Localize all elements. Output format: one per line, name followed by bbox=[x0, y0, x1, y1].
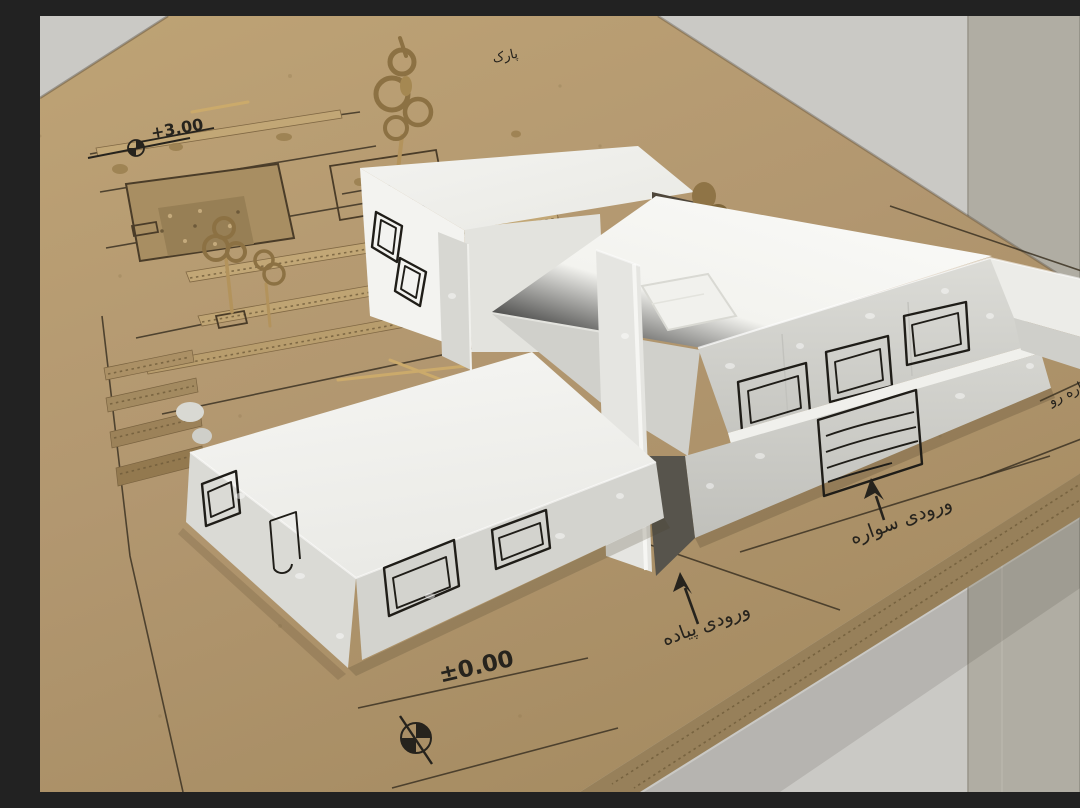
scene-photo: +3.00 ±0.00 ورودی پیاده ورودی سواره پارک… bbox=[40, 16, 1080, 792]
foam-pier bbox=[438, 232, 471, 370]
model-photograph: +3.00 ±0.00 ورودی پیاده ورودی سواره پارک… bbox=[40, 16, 1080, 792]
foam-scrap bbox=[176, 402, 204, 422]
